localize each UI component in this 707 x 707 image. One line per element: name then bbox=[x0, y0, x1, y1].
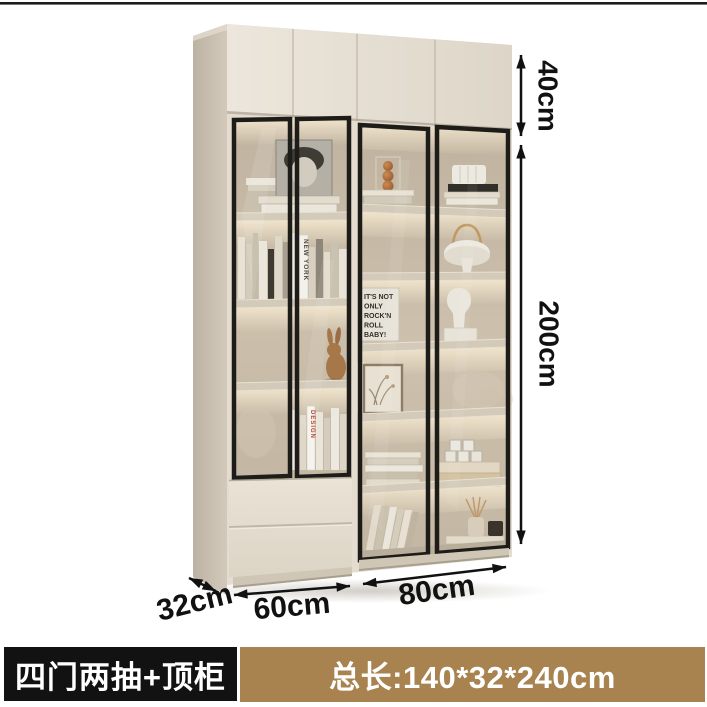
right-section: IT'S NOT ONLY ROCK'N ROLL BABY! bbox=[357, 123, 513, 571]
variant-label: 四门两抽+顶柜 bbox=[4, 647, 237, 701]
dim-label-top-cabinet: 40cm bbox=[533, 60, 564, 132]
drawers bbox=[229, 477, 352, 577]
cabinet-side-panel bbox=[193, 24, 227, 595]
cabinet-illustration: NEW YORK bbox=[0, 0, 707, 707]
dim-label-height: 200cm bbox=[534, 300, 565, 387]
cabinet: NEW YORK bbox=[193, 24, 513, 595]
top-border-line bbox=[0, 2, 707, 5]
product-image: NEW YORK bbox=[0, 0, 707, 707]
dim-label-depth: 32cm bbox=[153, 577, 235, 628]
left-section: NEW YORK bbox=[229, 118, 352, 588]
size-label: 总长:140*32*240cm bbox=[240, 647, 705, 702]
dim-label-right-width: 80cm bbox=[396, 569, 477, 612]
dim-label-left-width: 60cm bbox=[252, 587, 331, 627]
top-cabinet bbox=[227, 24, 512, 130]
